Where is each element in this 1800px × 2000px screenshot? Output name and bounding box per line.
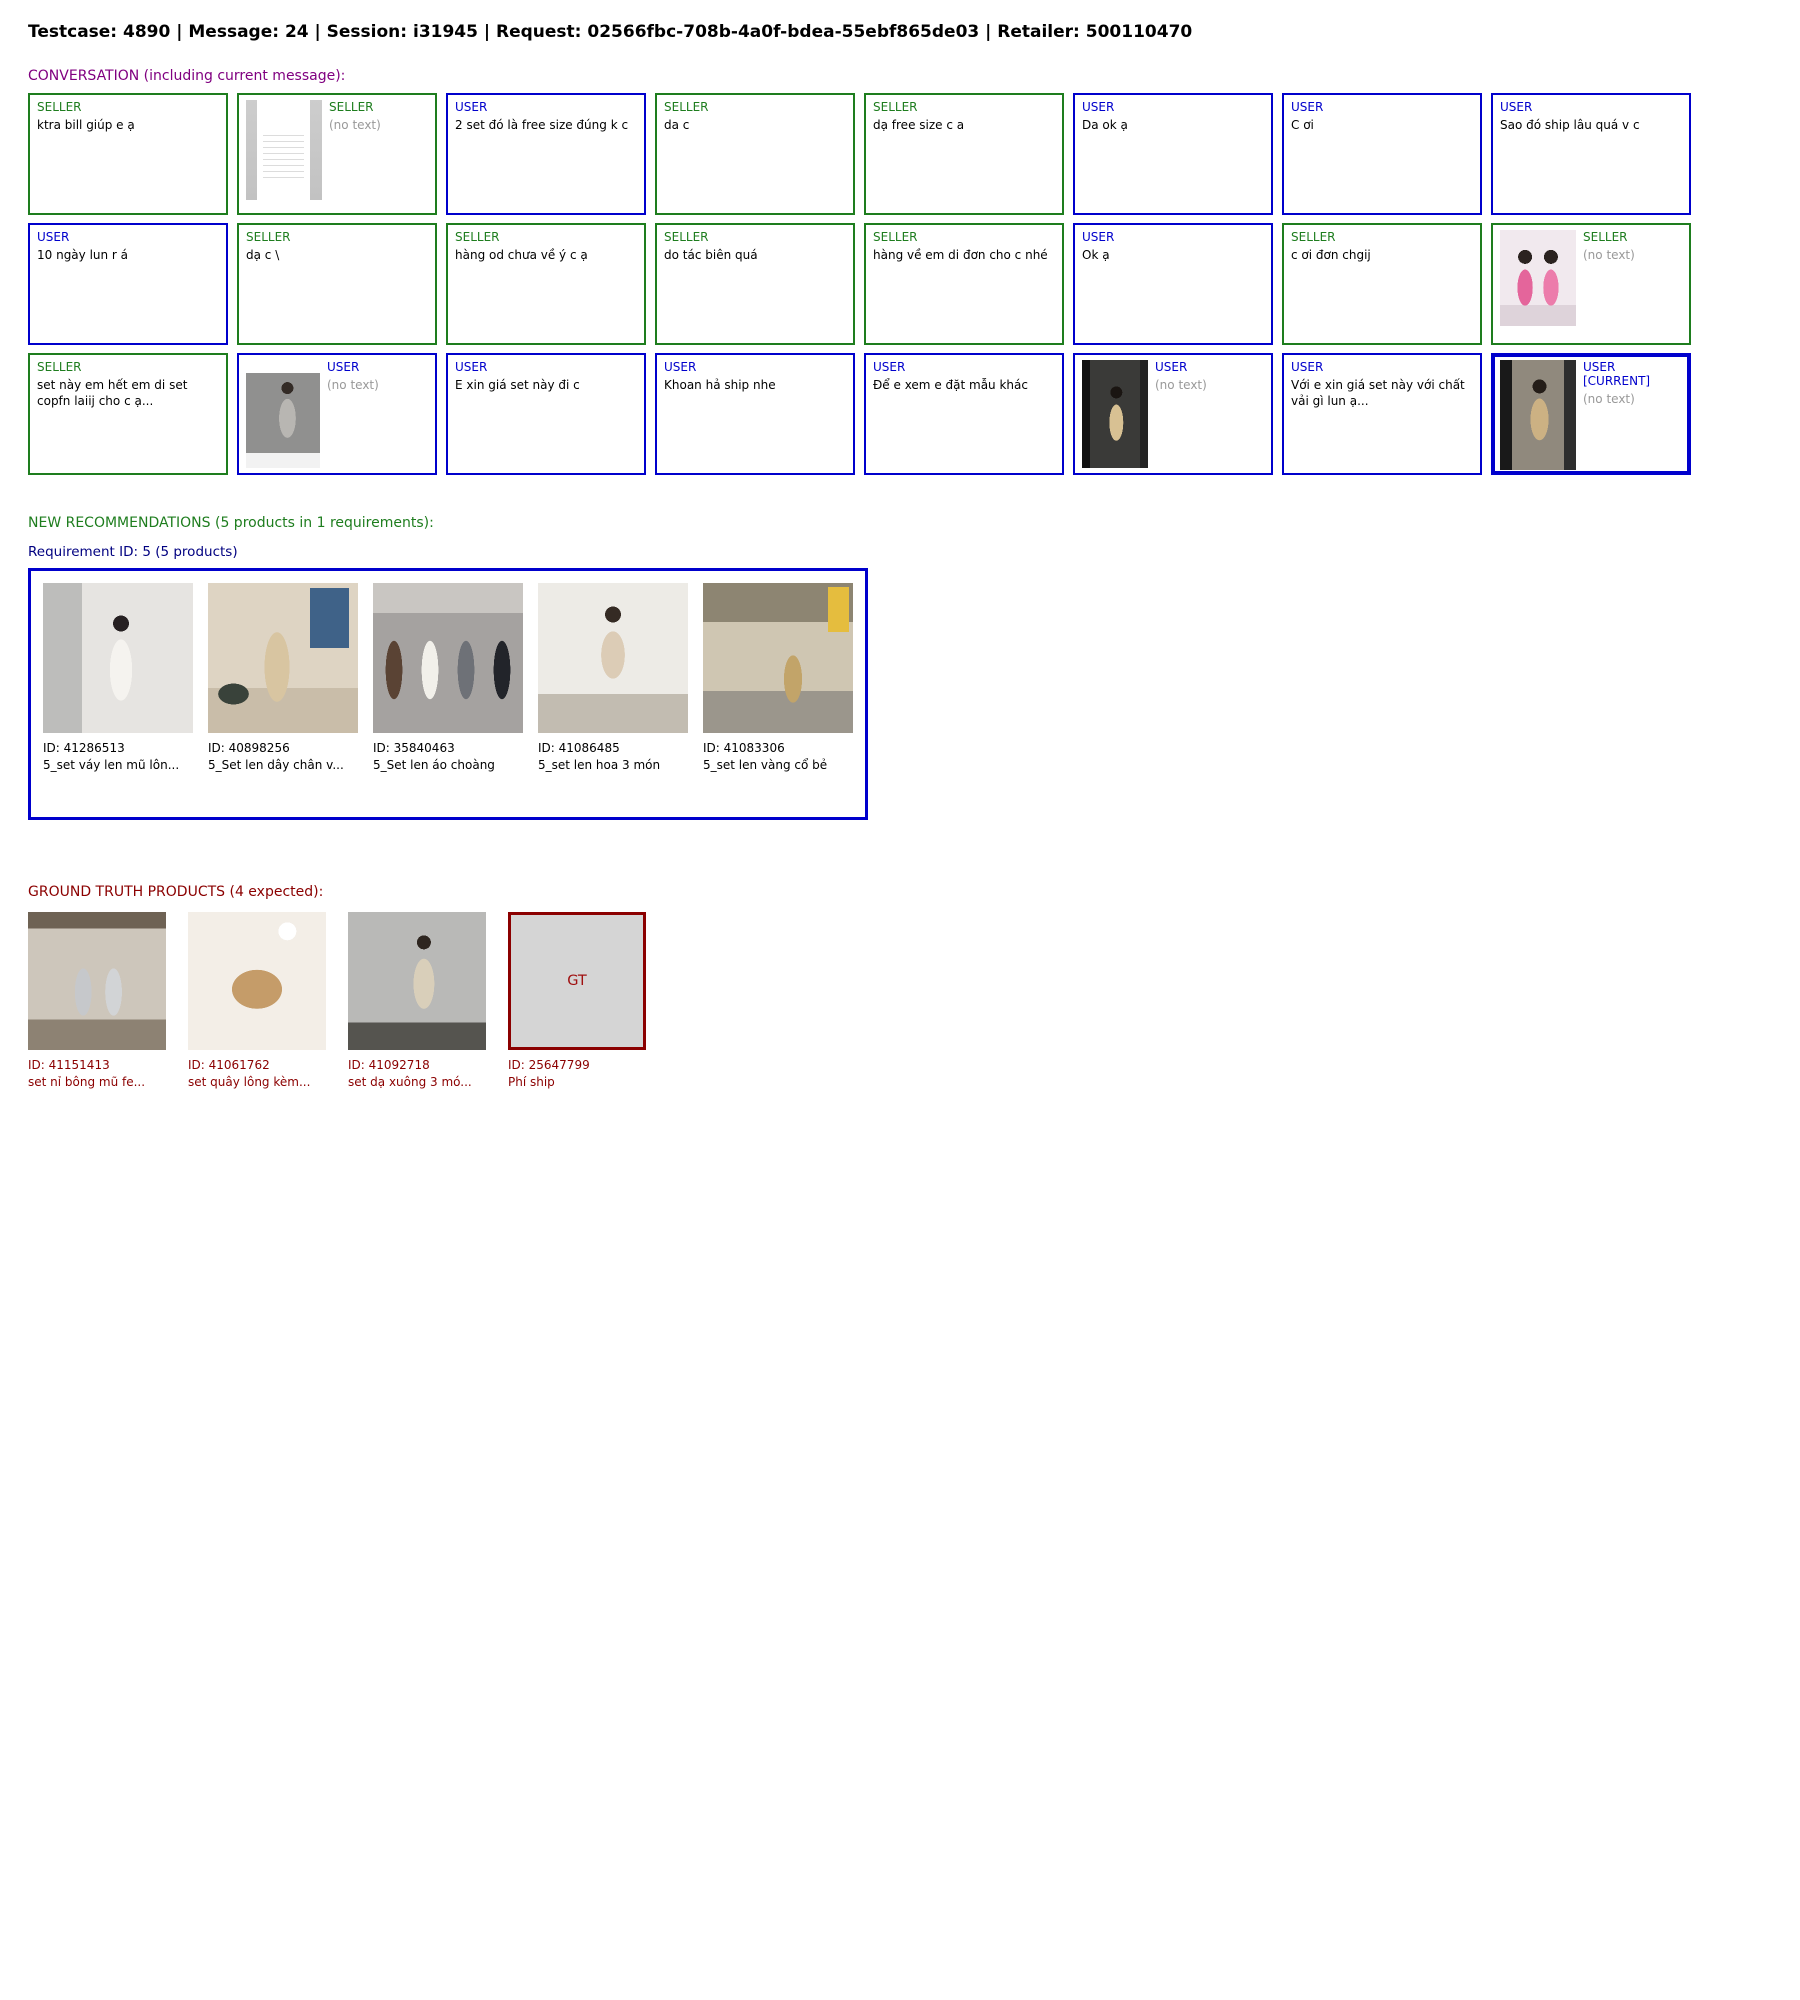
message-role-label: SELLER [37, 100, 219, 114]
message-text: 2 set đó là free size đúng k c [455, 117, 637, 133]
ground-truth-products-row: ID: 41151413set nỉ bông mũ fe...ID: 4106… [28, 912, 1800, 1091]
product-name: 5_Set len áo choàng [373, 757, 523, 774]
conversation-card: SELLERktra bill giúp e ạ [28, 93, 228, 215]
page-title: Testcase: 4890 | Message: 24 | Session: … [28, 22, 1800, 42]
conversation-card: USERE xin giá set này đi c [446, 353, 646, 475]
message-role-label: SELLER [37, 360, 219, 374]
message-role-label: USER [327, 360, 428, 374]
product-id: ID: 40898256 [208, 740, 358, 757]
product-image [188, 912, 326, 1050]
message-text: set này em hết em di set copfn laiij cho… [37, 377, 219, 409]
message-text: Khoan hả ship nhe [664, 377, 846, 393]
product-image [538, 583, 688, 733]
message-body: SELLERhàng về em di đơn cho c nhé [873, 230, 1055, 338]
product-id: ID: 41092718 [348, 1057, 486, 1074]
message-text: c ơi đơn chgij [1291, 247, 1473, 263]
message-body: SELLERdạ c \ [246, 230, 428, 338]
product-image [208, 583, 358, 733]
conversation-card: USERC ơi [1282, 93, 1482, 215]
product-image [373, 583, 523, 733]
conversation-card: USEROk ạ [1073, 223, 1273, 345]
message-body: SELLERda c [664, 100, 846, 208]
message-text: Với e xin giá set này với chất vải gì lu… [1291, 377, 1473, 409]
receipt-image [246, 100, 322, 200]
conversation-card: USERSao đó ship lâu quá v c [1491, 93, 1691, 215]
message-text: Da ok ạ [1082, 117, 1264, 133]
recommended-product-card: ID: 410833065_set len vàng cổ bẻ [703, 583, 853, 774]
conversation-card: SELLERhàng về em di đơn cho c nhé [864, 223, 1064, 345]
conversation-card: USER2 set đó là free size đúng k c [446, 93, 646, 215]
message-role-label: SELLER [1583, 230, 1682, 244]
product-id: ID: 41061762 [188, 1057, 326, 1074]
message-text: Để e xem e đặt mẫu khác [873, 377, 1055, 393]
message-text: dạ free size c a [873, 117, 1055, 133]
recommended-product-card: ID: 410864855_set len hoa 3 món [538, 583, 688, 774]
message-role-label: SELLER [1291, 230, 1473, 244]
conversation-card: SELLER(no text) [237, 93, 437, 215]
conversation-card: SELLERda c [655, 93, 855, 215]
ground-truth-heading: GROUND TRUTH PRODUCTS (4 expected): [28, 884, 1800, 900]
requirement-heading: Requirement ID: 5 (5 products) [28, 544, 1800, 560]
message-text: E xin giá set này đi c [455, 377, 637, 393]
conversation-card: USER(no text) [237, 353, 437, 475]
product-id: ID: 41286513 [43, 740, 193, 757]
message-body: USEROk ạ [1082, 230, 1264, 338]
message-body: USERDa ok ạ [1082, 100, 1264, 208]
message-role-label: SELLER [455, 230, 637, 244]
message-role-label: USER [1500, 100, 1682, 114]
message-role-label: SELLER [873, 100, 1055, 114]
recommended-product-card: ID: 408982565_Set len dây chân v... [208, 583, 358, 774]
message-body: SELLER(no text) [329, 100, 428, 208]
conversation-card: USERDa ok ạ [1073, 93, 1273, 215]
conversation-card: SELLERdạ c \ [237, 223, 437, 345]
message-role-label: USER [1082, 100, 1264, 114]
recommended-products-row: ID: 412865135_set váy len mũ lôn...ID: 4… [43, 583, 865, 774]
conversation-card: USERKhoan hả ship nhe [655, 353, 855, 475]
product-image [348, 912, 486, 1050]
message-body: SELLERset này em hết em di set copfn lai… [37, 360, 219, 468]
conversation-card: USER(no text) [1073, 353, 1273, 475]
message-role-label: USER [37, 230, 219, 244]
product-name: set quây lông kèm... [188, 1074, 326, 1091]
message-text: (no text) [327, 377, 428, 393]
recommended-product-card: ID: 358404635_Set len áo choàng [373, 583, 523, 774]
product-image [28, 912, 166, 1050]
ground-truth-product-card: ID: 41151413set nỉ bông mũ fe... [28, 912, 166, 1091]
product-name: set dạ xuông 3 mó... [348, 1074, 486, 1091]
store-video-image [1082, 360, 1148, 468]
message-role-label: USER [664, 360, 846, 374]
message-role-label: SELLER [873, 230, 1055, 244]
conversation-heading: CONVERSATION (including current message)… [28, 68, 1800, 84]
message-body: USER(no text) [327, 360, 428, 468]
message-body: SELLER(no text) [1583, 230, 1682, 338]
message-body: SELLERhàng od chưa về ý c ạ [455, 230, 637, 338]
conversation-grid: SELLERktra bill giúp e ạSELLER(no text)U… [28, 93, 1800, 475]
message-text: 10 ngày lun r á [37, 247, 219, 263]
pajama-image [1500, 230, 1576, 326]
ground-truth-product-card: ID: 41061762set quây lông kèm... [188, 912, 326, 1091]
report-page: Testcase: 4890 | Message: 24 | Session: … [0, 0, 1800, 1091]
message-role-label: USER [455, 100, 637, 114]
dress-video-image [1500, 360, 1576, 470]
product-name: 5_set len hoa 3 món [538, 757, 688, 774]
conversation-card: SELLERset này em hết em di set copfn lai… [28, 353, 228, 475]
conversation-card: USER10 ngày lun r á [28, 223, 228, 345]
outfit-shot-image [246, 360, 320, 468]
message-body: USERC ơi [1291, 100, 1473, 208]
message-text: hàng về em di đơn cho c nhé [873, 247, 1055, 263]
message-role-label: USER [1291, 360, 1473, 374]
conversation-card: SELLERdạ free size c a [864, 93, 1064, 215]
product-name: 5_set len vàng cổ bẻ [703, 757, 853, 774]
message-body: USERE xin giá set này đi c [455, 360, 637, 468]
message-body: USER [CURRENT](no text) [1583, 360, 1682, 468]
conversation-card: SELLERc ơi đơn chgij [1282, 223, 1482, 345]
message-role-label: SELLER [329, 100, 428, 114]
message-body: USER10 ngày lun r á [37, 230, 219, 338]
message-text: Sao đó ship lâu quá v c [1500, 117, 1682, 133]
product-image [703, 583, 853, 733]
message-role-label: USER [1155, 360, 1264, 374]
conversation-card: SELLERhàng od chưa về ý c ạ [446, 223, 646, 345]
message-body: USERVới e xin giá set này với chất vải g… [1291, 360, 1473, 468]
message-text: ktra bill giúp e ạ [37, 117, 219, 133]
product-name: Phí ship [508, 1074, 646, 1091]
message-role-label: SELLER [664, 230, 846, 244]
ground-truth-product-card: ID: 41092718set dạ xuông 3 mó... [348, 912, 486, 1091]
product-image [43, 583, 193, 733]
recommended-product-card: ID: 412865135_set váy len mũ lôn... [43, 583, 193, 774]
message-body: USER(no text) [1155, 360, 1264, 468]
message-text: Ok ạ [1082, 247, 1264, 263]
message-text: C ơi [1291, 117, 1473, 133]
message-text: (no text) [329, 117, 428, 133]
product-id: ID: 41083306 [703, 740, 853, 757]
product-id: ID: 41086485 [538, 740, 688, 757]
message-text: da c [664, 117, 846, 133]
ground-truth-placeholder: GT [508, 912, 646, 1050]
message-body: USERĐể e xem e đặt mẫu khác [873, 360, 1055, 468]
message-text: (no text) [1155, 377, 1264, 393]
message-text: (no text) [1583, 391, 1682, 407]
message-role-label: SELLER [664, 100, 846, 114]
message-role-label: USER [1082, 230, 1264, 244]
message-body: USERKhoan hả ship nhe [664, 360, 846, 468]
message-body: SELLERc ơi đơn chgij [1291, 230, 1473, 338]
product-id: ID: 25647799 [508, 1057, 646, 1074]
conversation-card: USERVới e xin giá set này với chất vải g… [1282, 353, 1482, 475]
message-text: dạ c \ [246, 247, 428, 263]
product-name: 5_Set len dây chân v... [208, 757, 358, 774]
conversation-card: USER [CURRENT](no text) [1491, 353, 1691, 475]
message-text: hàng od chưa về ý c ạ [455, 247, 637, 263]
ground-truth-product-card: GTID: 25647799Phí ship [508, 912, 646, 1091]
message-role-label: USER [CURRENT] [1583, 360, 1682, 388]
product-name: set nỉ bông mũ fe... [28, 1074, 166, 1091]
message-text: (no text) [1583, 247, 1682, 263]
message-body: USER2 set đó là free size đúng k c [455, 100, 637, 208]
product-id: ID: 35840463 [373, 740, 523, 757]
message-body: USERSao đó ship lâu quá v c [1500, 100, 1682, 208]
message-role-label: USER [455, 360, 637, 374]
product-name: 5_set váy len mũ lôn... [43, 757, 193, 774]
message-body: SELLERdạ free size c a [873, 100, 1055, 208]
product-id: ID: 41151413 [28, 1057, 166, 1074]
recommendations-heading: NEW RECOMMENDATIONS (5 products in 1 req… [28, 515, 1800, 531]
message-body: SELLERktra bill giúp e ạ [37, 100, 219, 208]
message-body: SELLERdo tác biên quá [664, 230, 846, 338]
message-role-label: SELLER [246, 230, 428, 244]
conversation-card: USERĐể e xem e đặt mẫu khác [864, 353, 1064, 475]
conversation-card: SELLERdo tác biên quá [655, 223, 855, 345]
message-role-label: USER [1291, 100, 1473, 114]
message-role-label: USER [873, 360, 1055, 374]
conversation-card: SELLER(no text) [1491, 223, 1691, 345]
requirement-box: ID: 412865135_set váy len mũ lôn...ID: 4… [28, 568, 868, 820]
message-text: do tác biên quá [664, 247, 846, 263]
